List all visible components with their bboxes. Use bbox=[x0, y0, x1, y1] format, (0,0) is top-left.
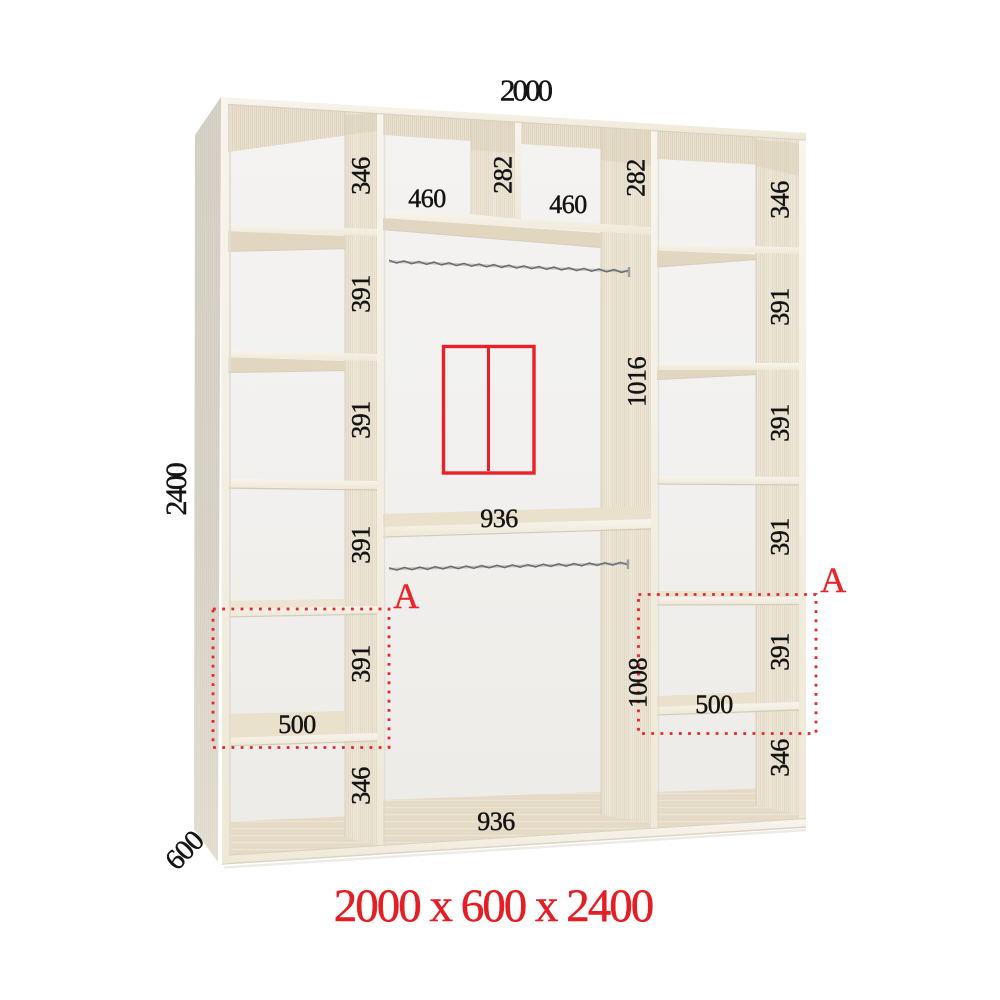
svg-text:2000: 2000 bbox=[500, 73, 553, 108]
svg-text:460: 460 bbox=[549, 190, 587, 219]
svg-text:346: 346 bbox=[347, 767, 376, 805]
svg-text:391: 391 bbox=[766, 518, 795, 556]
svg-text:391: 391 bbox=[347, 275, 376, 313]
svg-text:391: 391 bbox=[347, 645, 376, 683]
svg-text:282: 282 bbox=[489, 156, 518, 194]
svg-text:936: 936 bbox=[480, 504, 518, 533]
svg-text:346: 346 bbox=[766, 739, 795, 777]
svg-text:282: 282 bbox=[622, 159, 651, 197]
svg-text:A: A bbox=[820, 560, 846, 600]
svg-text:500: 500 bbox=[278, 710, 316, 739]
svg-text:391: 391 bbox=[347, 526, 376, 564]
svg-text:391: 391 bbox=[766, 404, 795, 442]
svg-text:500: 500 bbox=[695, 690, 733, 719]
svg-text:391: 391 bbox=[347, 401, 376, 439]
svg-text:391: 391 bbox=[766, 288, 795, 326]
svg-text:A: A bbox=[393, 576, 419, 616]
svg-text:1008: 1008 bbox=[624, 658, 653, 709]
svg-text:391: 391 bbox=[766, 633, 795, 671]
svg-text:460: 460 bbox=[408, 184, 446, 213]
svg-text:2000 x 600 x 2400: 2000 x 600 x 2400 bbox=[334, 880, 653, 932]
svg-text:1016: 1016 bbox=[623, 357, 652, 408]
svg-text:346: 346 bbox=[347, 157, 376, 195]
svg-text:936: 936 bbox=[477, 807, 515, 836]
svg-text:2400: 2400 bbox=[160, 463, 193, 515]
svg-text:346: 346 bbox=[766, 181, 795, 219]
